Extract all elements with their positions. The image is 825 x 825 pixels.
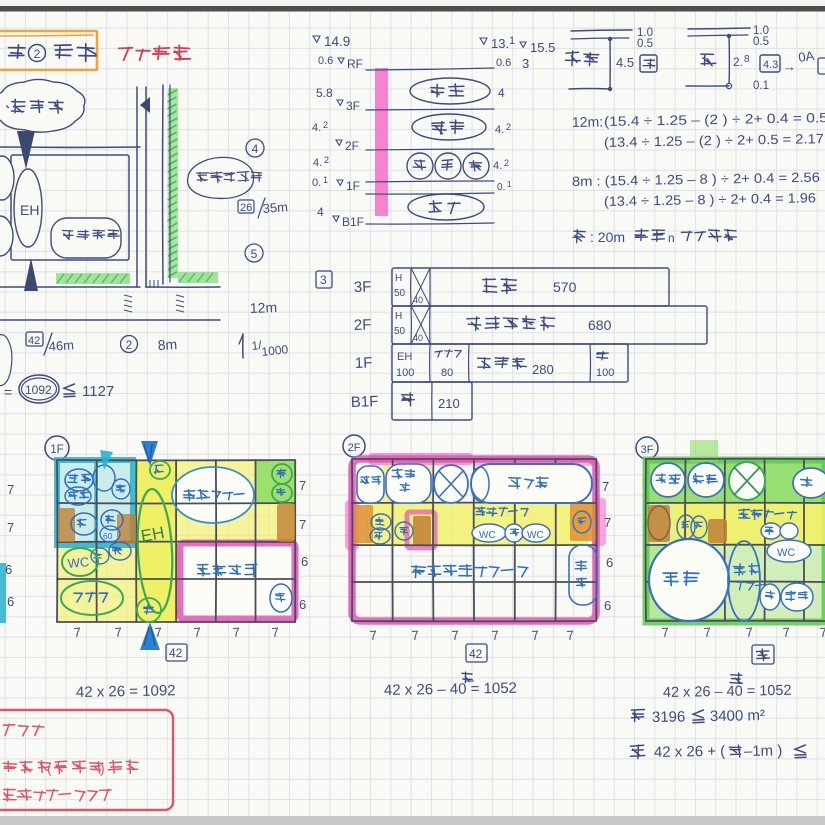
svg-text:42 x 26 – 40 = 1052: 42 x 26 – 40 = 1052 [384, 680, 517, 699]
svg-text:7: 7 [193, 625, 201, 640]
svg-text:26: 26 [240, 202, 252, 214]
svg-text:3F: 3F [641, 444, 654, 456]
svg-text:→: → [783, 59, 796, 74]
svg-text:680: 680 [588, 317, 612, 333]
svg-text:1092: 1092 [25, 383, 52, 397]
svg-text:2: 2 [34, 47, 41, 61]
svg-text:4: 4 [252, 142, 259, 156]
svg-text:7: 7 [661, 625, 669, 640]
svg-text:7: 7 [451, 628, 459, 643]
svg-text:0.5: 0.5 [637, 38, 653, 50]
svg-text:7: 7 [566, 628, 574, 643]
svg-text:WC: WC [479, 530, 496, 541]
svg-text:7: 7 [7, 482, 14, 497]
svg-text:B1F: B1F [342, 215, 364, 229]
svg-text:H: H [395, 311, 402, 322]
svg-text:7: 7 [411, 628, 419, 643]
svg-text:–1m ): –1m ) [744, 742, 783, 760]
svg-text:(: ( [47, 760, 52, 776]
svg-text:6: 6 [604, 598, 611, 613]
svg-text:7: 7 [604, 515, 611, 530]
svg-text:40: 40 [413, 295, 423, 305]
svg-text:6: 6 [7, 594, 14, 609]
svg-text:7: 7 [114, 625, 122, 640]
svg-text:): ) [100, 760, 105, 776]
svg-text:4: 4 [317, 205, 324, 219]
svg-text:6: 6 [299, 597, 306, 612]
svg-text:4.5: 4.5 [616, 55, 634, 70]
svg-text:100: 100 [396, 367, 414, 379]
svg-text:RF: RF [347, 57, 363, 71]
svg-text:3400 m²: 3400 m² [710, 707, 765, 725]
svg-text:280: 280 [532, 362, 554, 377]
svg-text:8: 8 [744, 54, 750, 65]
svg-text:2: 2 [506, 122, 511, 132]
svg-text:100: 100 [596, 367, 614, 379]
svg-text:4: 4 [498, 86, 505, 100]
svg-text:2: 2 [504, 158, 509, 168]
svg-text:0.6: 0.6 [318, 55, 333, 67]
svg-text:4.: 4. [495, 124, 504, 136]
svg-text:1000: 1000 [261, 342, 289, 359]
svg-text:n: n [668, 231, 675, 245]
svg-text:4.3: 4.3 [763, 59, 778, 71]
svg-text:35m: 35m [262, 199, 288, 216]
svg-text:80: 80 [441, 367, 453, 379]
svg-text:1F: 1F [50, 444, 63, 456]
svg-text:1: 1 [507, 180, 512, 189]
svg-text:7: 7 [7, 520, 14, 535]
svg-text:1F: 1F [355, 354, 373, 372]
svg-text:0.: 0. [497, 182, 505, 193]
svg-text:2F: 2F [354, 316, 372, 334]
svg-text:7: 7 [299, 517, 306, 532]
svg-text:=: = [4, 384, 12, 400]
svg-text:3F: 3F [346, 99, 360, 113]
svg-text:WC: WC [67, 554, 90, 571]
svg-text:7: 7 [299, 478, 306, 493]
svg-text:42: 42 [28, 335, 40, 347]
svg-text:7: 7 [369, 628, 377, 643]
svg-text:6: 6 [606, 555, 613, 570]
svg-text:7: 7 [782, 625, 790, 640]
svg-text:7: 7 [703, 625, 711, 640]
svg-text:6: 6 [5, 562, 12, 577]
svg-text:8m: 8m [157, 336, 177, 353]
svg-text:42: 42 [469, 647, 483, 661]
svg-text:2.: 2. [733, 55, 743, 69]
svg-text:12m: 12m [250, 299, 278, 316]
svg-text:7: 7 [271, 625, 279, 640]
svg-text:3F: 3F [354, 278, 372, 296]
svg-text:1127: 1127 [82, 383, 114, 400]
svg-text:0.5: 0.5 [753, 36, 769, 48]
svg-text:15.5: 15.5 [530, 40, 555, 55]
svg-text:13.: 13. [491, 36, 509, 51]
svg-text:EH: EH [139, 523, 166, 546]
svg-text:50: 50 [394, 288, 406, 299]
svg-text:60: 60 [103, 531, 113, 541]
svg-text:4.: 4. [313, 157, 322, 169]
svg-text:0.6: 0.6 [496, 57, 511, 69]
svg-text:0.1: 0.1 [753, 80, 769, 92]
svg-text:14.9: 14.9 [324, 34, 350, 49]
svg-text:42 x 26 = 1092: 42 x 26 = 1092 [76, 682, 176, 701]
svg-text:50: 50 [394, 326, 406, 337]
svg-text:7: 7 [531, 628, 539, 643]
svg-text:H: H [395, 273, 402, 284]
svg-text:1: 1 [509, 35, 515, 47]
svg-text:7: 7 [232, 625, 240, 640]
svg-text:4.: 4. [312, 122, 321, 134]
svg-text:0A: 0A [797, 48, 815, 65]
svg-text:5: 5 [251, 247, 258, 261]
svg-text:3: 3 [320, 273, 327, 287]
svg-text:210: 210 [438, 396, 460, 411]
svg-text:WC: WC [777, 547, 795, 559]
svg-text:B1F: B1F [351, 393, 379, 411]
svg-text:7: 7 [154, 625, 162, 640]
svg-text:7: 7 [73, 625, 81, 640]
svg-text:2: 2 [324, 155, 329, 165]
svg-text:42: 42 [169, 646, 183, 660]
svg-text:7: 7 [819, 625, 825, 640]
svg-text:WC: WC [527, 530, 544, 541]
svg-text:2F: 2F [345, 139, 359, 153]
svg-text:42 x 26 + (: 42 x 26 + ( [654, 743, 726, 761]
svg-text:: 20m: : 20m [590, 229, 625, 245]
svg-text:1F: 1F [346, 179, 360, 193]
svg-text:42 x 26 – 40 = 1052: 42 x 26 – 40 = 1052 [663, 683, 792, 701]
svg-text:2: 2 [126, 340, 132, 352]
svg-text:7: 7 [602, 479, 609, 494]
svg-text:2F: 2F [348, 442, 361, 454]
svg-text:6: 6 [301, 554, 308, 569]
svg-text:EH: EH [397, 351, 412, 363]
svg-text:4.: 4. [493, 160, 502, 172]
svg-text:46m: 46m [48, 337, 74, 354]
svg-text:40: 40 [413, 333, 423, 343]
svg-text:7: 7 [491, 628, 499, 643]
svg-text:3: 3 [522, 56, 529, 71]
svg-text:12m:: 12m: [572, 113, 603, 130]
svg-text:7: 7 [745, 625, 753, 640]
svg-text:570: 570 [553, 279, 577, 295]
svg-text:EH: EH [20, 202, 39, 218]
svg-text:2: 2 [323, 120, 328, 130]
svg-text:1: 1 [323, 175, 328, 185]
svg-text:5.8: 5.8 [316, 86, 333, 100]
svg-text:3196: 3196 [652, 708, 686, 726]
svg-text:0.: 0. [312, 177, 321, 189]
